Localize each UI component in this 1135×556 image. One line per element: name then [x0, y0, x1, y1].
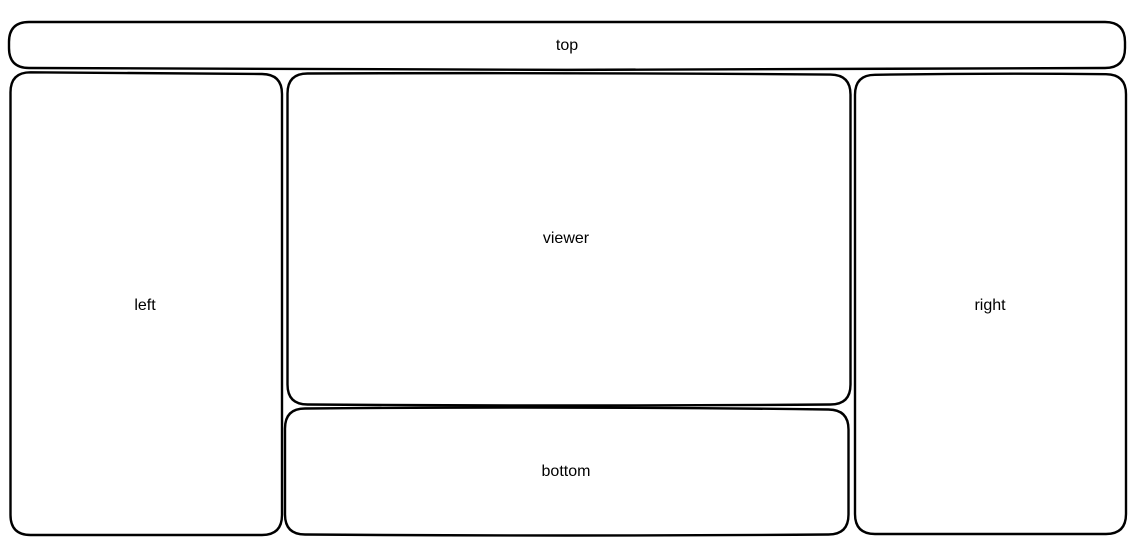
- svg-text:right: right: [974, 297, 1006, 314]
- svg-text:top: top: [556, 37, 578, 54]
- svg-text:bottom: bottom: [542, 463, 591, 480]
- svg-text:viewer: viewer: [543, 230, 590, 247]
- svg-text:left: left: [134, 297, 156, 314]
